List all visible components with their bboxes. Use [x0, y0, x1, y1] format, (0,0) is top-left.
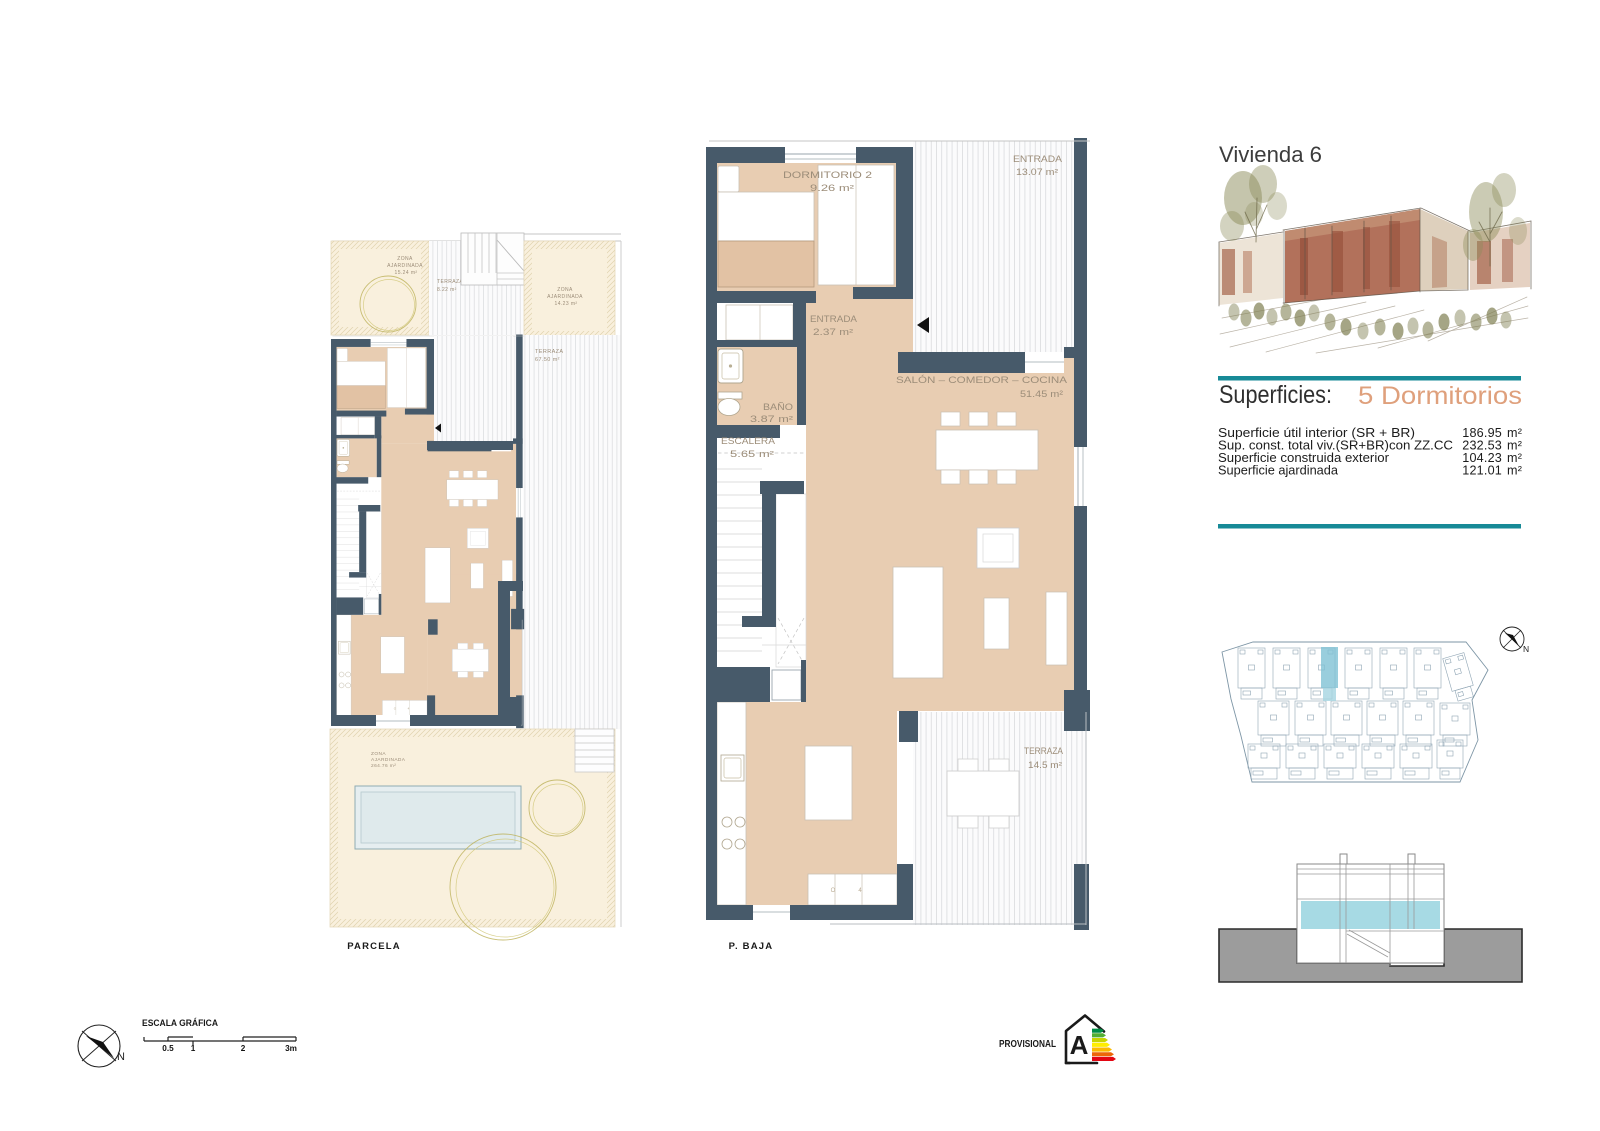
svg-text:PARCELA: PARCELA: [347, 941, 401, 952]
svg-text:5.65 m²: 5.65 m²: [730, 449, 774, 459]
svg-text:8.22 m²: 8.22 m²: [437, 287, 457, 293]
svg-text:9.26 m²: 9.26 m²: [810, 183, 854, 193]
svg-text:1: 1: [191, 1044, 196, 1053]
svg-text:2: 2: [241, 1044, 246, 1053]
svg-text:A: A: [1070, 1030, 1089, 1060]
svg-text:Vivienda 6: Vivienda 6: [1219, 142, 1322, 167]
svg-text:264.76 m²: 264.76 m²: [371, 763, 396, 769]
svg-text:ZONA: ZONA: [397, 256, 413, 262]
svg-text:Superficies:: Superficies:: [1219, 381, 1332, 409]
svg-text:Superficie ajardinada: Superficie ajardinada: [1218, 464, 1338, 478]
svg-text:14.23 m²: 14.23 m²: [555, 301, 578, 307]
svg-text:PROVISIONAL: PROVISIONAL: [999, 1039, 1056, 1050]
svg-text:0.5: 0.5: [162, 1044, 174, 1053]
svg-text:ESCALERA: ESCALERA: [721, 436, 775, 446]
svg-text:ESCALA GRÁFICA: ESCALA GRÁFICA: [142, 1018, 219, 1028]
svg-text:AJARDINADA: AJARDINADA: [371, 757, 406, 763]
svg-text:TERRAZA: TERRAZA: [535, 349, 563, 355]
svg-text:SALÓN – COMEDOR – COCINA: SALÓN – COMEDOR – COCINA: [896, 375, 1068, 386]
svg-text:N: N: [1523, 644, 1529, 654]
svg-text:13.07 m²: 13.07 m²: [1016, 167, 1058, 177]
svg-text:BAÑO: BAÑO: [763, 402, 793, 412]
svg-text:DORMITORIO 2: DORMITORIO 2: [783, 170, 872, 180]
svg-text:P. BAJA: P. BAJA: [729, 941, 774, 952]
svg-text:51.45 m²: 51.45 m²: [1020, 389, 1063, 400]
svg-text:AJARDINADA: AJARDINADA: [547, 294, 583, 300]
svg-text:14.5 m²: 14.5 m²: [1028, 760, 1062, 770]
svg-text:121.01: 121.01: [1462, 464, 1502, 478]
svg-text:AJARDINADA: AJARDINADA: [387, 263, 423, 269]
svg-text:ENTRADA: ENTRADA: [810, 314, 857, 324]
svg-text:15.24 m²: 15.24 m²: [395, 270, 418, 276]
svg-text:67.50 m²: 67.50 m²: [535, 357, 560, 363]
svg-text:N: N: [117, 1051, 125, 1063]
svg-text:ZONA: ZONA: [557, 287, 573, 293]
svg-text:ENTRADA: ENTRADA: [1013, 154, 1062, 164]
svg-text:3.87 m²: 3.87 m²: [750, 414, 793, 424]
svg-text:3m: 3m: [285, 1044, 297, 1053]
svg-text:ZONA: ZONA: [371, 751, 386, 757]
svg-text:5 Dormitorios: 5 Dormitorios: [1358, 382, 1522, 410]
svg-text:TERRAZA: TERRAZA: [437, 279, 463, 285]
svg-text:2.37 m²: 2.37 m²: [813, 327, 853, 337]
svg-text:TERRAZA: TERRAZA: [1024, 746, 1063, 756]
svg-text:O: O: [831, 888, 836, 894]
svg-text:m²: m²: [1507, 464, 1522, 478]
